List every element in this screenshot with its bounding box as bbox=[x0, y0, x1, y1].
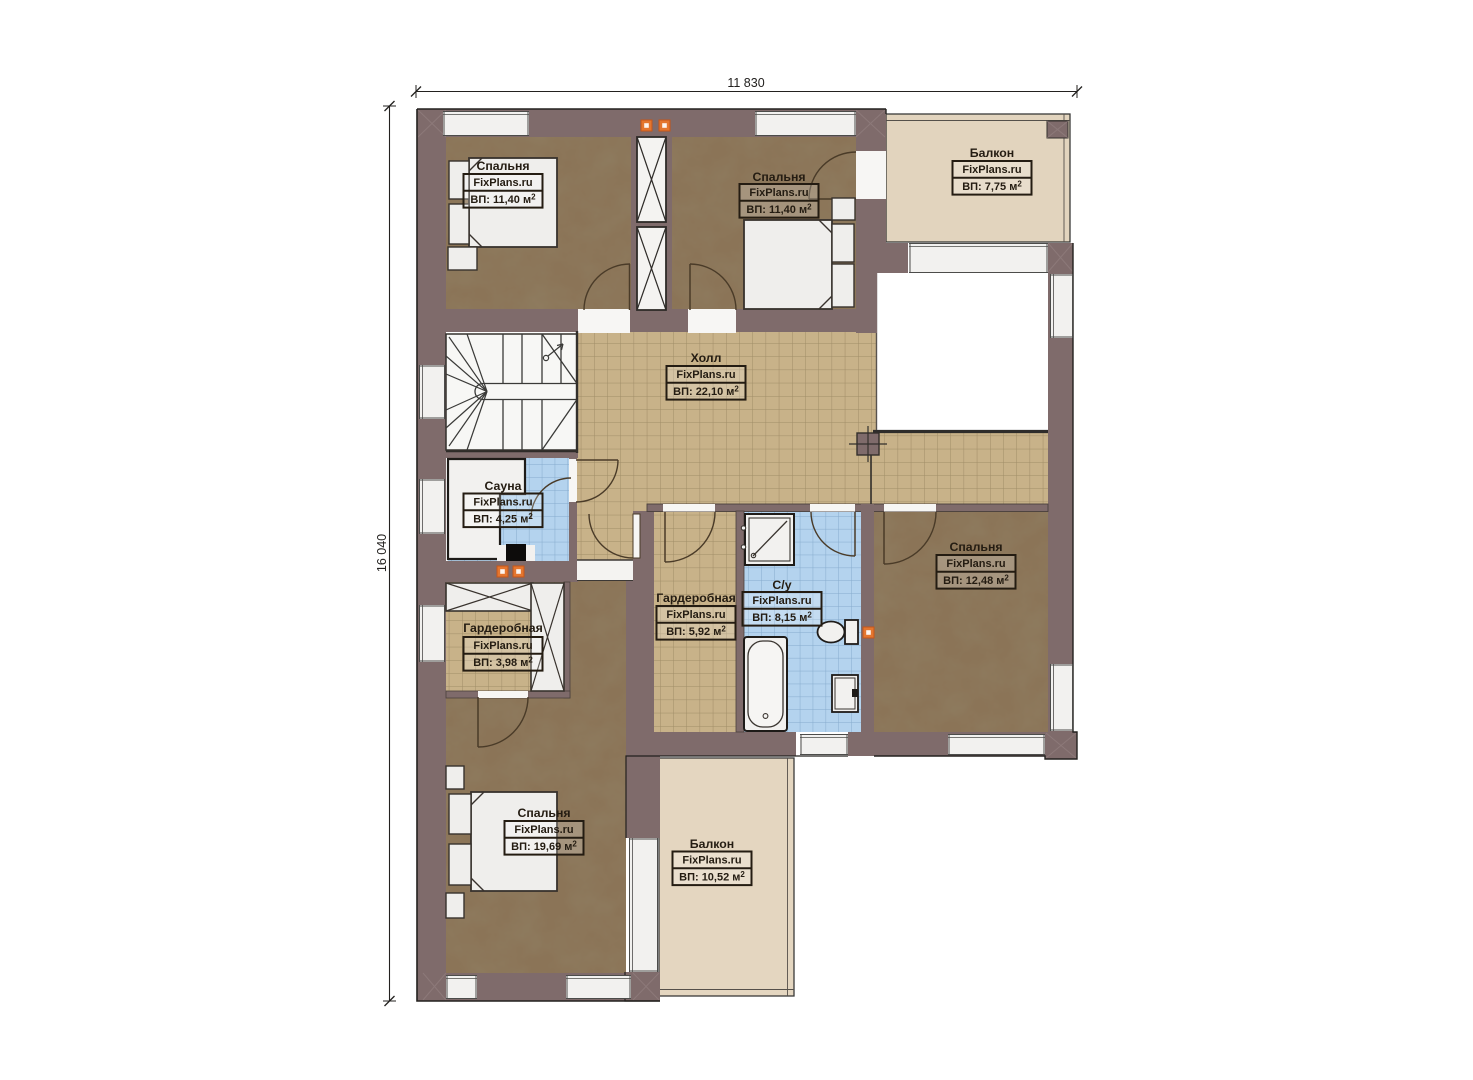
svg-text:FixPlans.ru: FixPlans.ru bbox=[676, 369, 735, 381]
svg-text:Спальня: Спальня bbox=[517, 806, 570, 820]
svg-text:11 830: 11 830 bbox=[727, 76, 764, 90]
svg-text:Сауна: Сауна bbox=[485, 479, 522, 493]
svg-text:ВП: 7,75 м2: ВП: 7,75 м2 bbox=[962, 179, 1022, 193]
svg-text:FixPlans.ru: FixPlans.ru bbox=[473, 177, 532, 189]
svg-text:Холл: Холл bbox=[691, 351, 722, 365]
svg-text:ВП: 5,92 м2: ВП: 5,92 м2 bbox=[666, 624, 726, 638]
svg-text:ВП: 19,69 м2: ВП: 19,69 м2 bbox=[511, 839, 577, 853]
svg-text:FixPlans.ru: FixPlans.ru bbox=[946, 558, 1005, 570]
svg-text:Балкон: Балкон bbox=[970, 146, 1014, 160]
svg-text:FixPlans.ru: FixPlans.ru bbox=[682, 855, 741, 867]
svg-text:ВП: 4,25 м2: ВП: 4,25 м2 bbox=[473, 512, 533, 526]
svg-text:Спальня: Спальня bbox=[752, 170, 805, 184]
svg-text:FixPlans.ru: FixPlans.ru bbox=[752, 595, 811, 607]
svg-text:ВП: 11,40 м2: ВП: 11,40 м2 bbox=[470, 192, 536, 206]
svg-text:ВП: 12,48 м2: ВП: 12,48 м2 bbox=[943, 573, 1009, 587]
svg-text:FixPlans.ru: FixPlans.ru bbox=[473, 640, 532, 652]
svg-text:С/у: С/у bbox=[772, 578, 791, 592]
svg-text:FixPlans.ru: FixPlans.ru bbox=[473, 497, 532, 509]
svg-text:Гардеробная: Гардеробная bbox=[656, 591, 736, 605]
svg-text:ВП: 10,52 м2: ВП: 10,52 м2 bbox=[679, 870, 745, 884]
svg-text:FixPlans.ru: FixPlans.ru bbox=[666, 609, 725, 621]
svg-text:Спальня: Спальня bbox=[476, 159, 529, 173]
svg-text:Балкон: Балкон bbox=[690, 837, 734, 851]
svg-text:FixPlans.ru: FixPlans.ru bbox=[749, 187, 808, 199]
svg-text:16 040: 16 040 bbox=[375, 534, 389, 572]
svg-text:ВП: 8,15 м2: ВП: 8,15 м2 bbox=[752, 610, 812, 624]
svg-text:ВП: 11,40 м2: ВП: 11,40 м2 bbox=[746, 202, 812, 216]
svg-text:ВП: 3,98 м2: ВП: 3,98 м2 bbox=[473, 655, 533, 669]
svg-text:FixPlans.ru: FixPlans.ru bbox=[514, 824, 573, 836]
svg-text:ВП: 22,10 м2: ВП: 22,10 м2 bbox=[673, 384, 739, 398]
svg-text:Гардеробная: Гардеробная bbox=[463, 621, 543, 635]
svg-text:FixPlans.ru: FixPlans.ru bbox=[962, 164, 1021, 176]
svg-text:Спальня: Спальня bbox=[949, 540, 1002, 554]
